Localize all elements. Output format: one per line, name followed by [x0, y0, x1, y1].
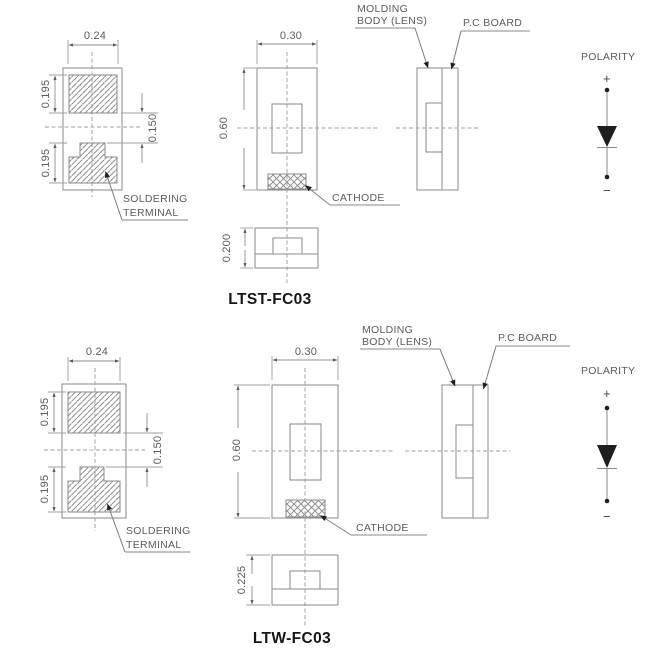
anode-dot [605, 406, 610, 411]
polarity-symbol-top: POLARITY + − [581, 51, 635, 198]
dim-profile-height: 0.225 [236, 566, 248, 595]
plus-sign: + [603, 71, 611, 86]
dim-pad-width: 0.24 [84, 30, 106, 42]
molding-leader-arrow [415, 28, 428, 68]
footprint-view-top: 0.24 0.195 0.195 0.150 SOLDERING TERMINA… [40, 30, 188, 220]
molding-body-label: MOLDING [362, 324, 413, 336]
cathode-pad-hatched [69, 143, 117, 183]
dim-pad-width: 0.24 [86, 346, 108, 358]
dim-pad-gap: 0.150 [152, 436, 164, 465]
dim-pad-top-height: 0.195 [39, 398, 51, 427]
diagram-canvas: 0.24 0.195 0.195 0.150 SOLDERING TERMINA… [0, 0, 657, 671]
polarity-label: POLARITY [581, 51, 635, 63]
diode-triangle [597, 445, 617, 468]
soldering-terminal-label: SOLDERING [123, 193, 188, 205]
dim-profile-height: 0.200 [221, 234, 233, 263]
anode-pad-hatched [68, 392, 120, 433]
cathode-label: CATHODE [356, 522, 409, 534]
lens-outline [290, 424, 321, 480]
plus-sign: + [603, 386, 611, 401]
soldering-terminal-label: TERMINAL [126, 539, 182, 551]
soldering-terminal-label: SOLDERING [126, 525, 191, 537]
footprint-view-bottom: 0.24 0.195 0.195 0.150 SOLDERING TERMINA… [39, 346, 191, 552]
dim-body-height: 0.60 [218, 117, 230, 139]
anode-dot [605, 88, 610, 93]
side-view-top: MOLDING BODY (LENS) P.C BOARD [355, 3, 530, 190]
cathode-mark-crosshatch [286, 500, 325, 517]
ltst-fc03-drawing: 0.24 0.195 0.195 0.150 SOLDERING TERMINA… [40, 3, 635, 308]
cathode-leader-arrow [306, 186, 331, 206]
polarity-symbol-bottom: POLARITY + − [581, 365, 635, 524]
cathode-label: CATHODE [332, 192, 385, 204]
cathode-dot [605, 175, 610, 180]
technical-drawing-svg: 0.24 0.195 0.195 0.150 SOLDERING TERMINA… [0, 0, 657, 671]
front-view-bottom: 0.225 [236, 555, 338, 605]
pcboard-leader-arrow [484, 346, 497, 389]
profile-outline [255, 228, 318, 268]
molding-body-label: BODY (LENS) [357, 15, 427, 27]
minus-sign: − [603, 509, 611, 524]
side-view-bottom: MOLDING BODY (LENS) P.C BOARD [360, 324, 570, 518]
cathode-dot [605, 499, 610, 504]
dim-pad-bottom-height: 0.195 [40, 149, 52, 178]
dim-body-width: 0.30 [280, 30, 302, 42]
side-outline [442, 385, 488, 518]
molding-body-label: MOLDING [357, 3, 408, 15]
part-number-title-top: LTST-FC03 [228, 291, 311, 308]
pc-board-label: P.C BOARD [498, 332, 557, 344]
polarity-label: POLARITY [581, 365, 635, 377]
pcboard-leader-arrow [452, 31, 462, 69]
side-lens-outline [456, 425, 473, 478]
molding-leader-arrow [440, 349, 455, 386]
ltw-fc03-drawing: 0.24 0.195 0.195 0.150 SOLDERING TERMINA… [39, 324, 635, 647]
side-outline [417, 68, 458, 190]
part-number-title-bottom: LTW-FC03 [253, 630, 331, 647]
pc-board-label: P.C BOARD [463, 17, 522, 29]
dim-body-height: 0.60 [231, 439, 243, 461]
molding-body-label: BODY (LENS) [362, 336, 432, 348]
dim-pad-gap: 0.150 [147, 114, 159, 143]
top-view-bottom: 0.30 0.60 CATHODE [231, 346, 427, 626]
minus-sign: − [603, 183, 611, 198]
dim-pad-bottom-height: 0.195 [39, 475, 51, 504]
soldering-terminal-label: TERMINAL [123, 207, 179, 219]
side-lens-outline [426, 103, 442, 152]
cathode-pad-hatched [68, 467, 120, 512]
dim-pad-top-height: 0.195 [40, 80, 52, 109]
front-view-top: 0.200 [221, 228, 318, 268]
anode-pad-hatched [69, 75, 117, 113]
dim-body-width: 0.30 [295, 346, 317, 358]
diode-triangle [597, 126, 617, 147]
profile-lens-bump [273, 238, 302, 254]
